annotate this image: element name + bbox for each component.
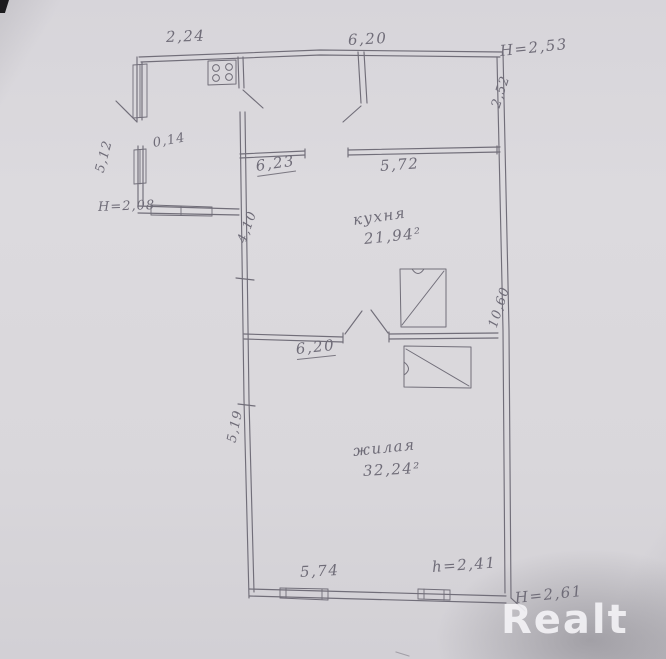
furnace-icon-kitchen [400, 269, 446, 327]
stove-icon [208, 60, 236, 85]
dim-top-width: 6,20 [348, 29, 388, 49]
window-icon-annex-left-2 [134, 149, 146, 184]
floorplan-scan: 2,24 6,20 Н=2,53 2,52 0,14 5,12 Н=2,08 6… [0, 0, 666, 659]
wall-partition [244, 332, 498, 343]
door-leaf-partition-right [371, 310, 388, 333]
floorplan-drawing [0, 0, 666, 659]
door-leaf-annex-entry [116, 101, 137, 122]
note-annex-height: Н=2,08 [98, 198, 156, 215]
dim-kitchen-top-width: 5,72 [379, 154, 420, 175]
window-icon-annex-left-1 [133, 64, 147, 118]
dim-partition-length: 6,20 [295, 336, 336, 360]
door-leaf-annex-to-hall [243, 90, 263, 108]
realt-watermark-logo: Realt [501, 597, 629, 643]
wall-hall-right [358, 52, 367, 103]
room-living-area: 32,24² [363, 459, 422, 480]
dim-annex-width: 2,24 [166, 27, 206, 46]
wall-bottom [249, 589, 506, 603]
dim-bottom-width: 5,74 [300, 561, 340, 581]
door-leaf-partition-left [345, 311, 362, 334]
stray-pencil-mark [396, 652, 409, 656]
wall-main-left [236, 57, 255, 598]
wall-top [139, 50, 503, 62]
furnace-icon-living [404, 346, 471, 388]
door-leaf-hall-to-kitchen [343, 106, 361, 122]
wall-main-right [497, 52, 525, 611]
